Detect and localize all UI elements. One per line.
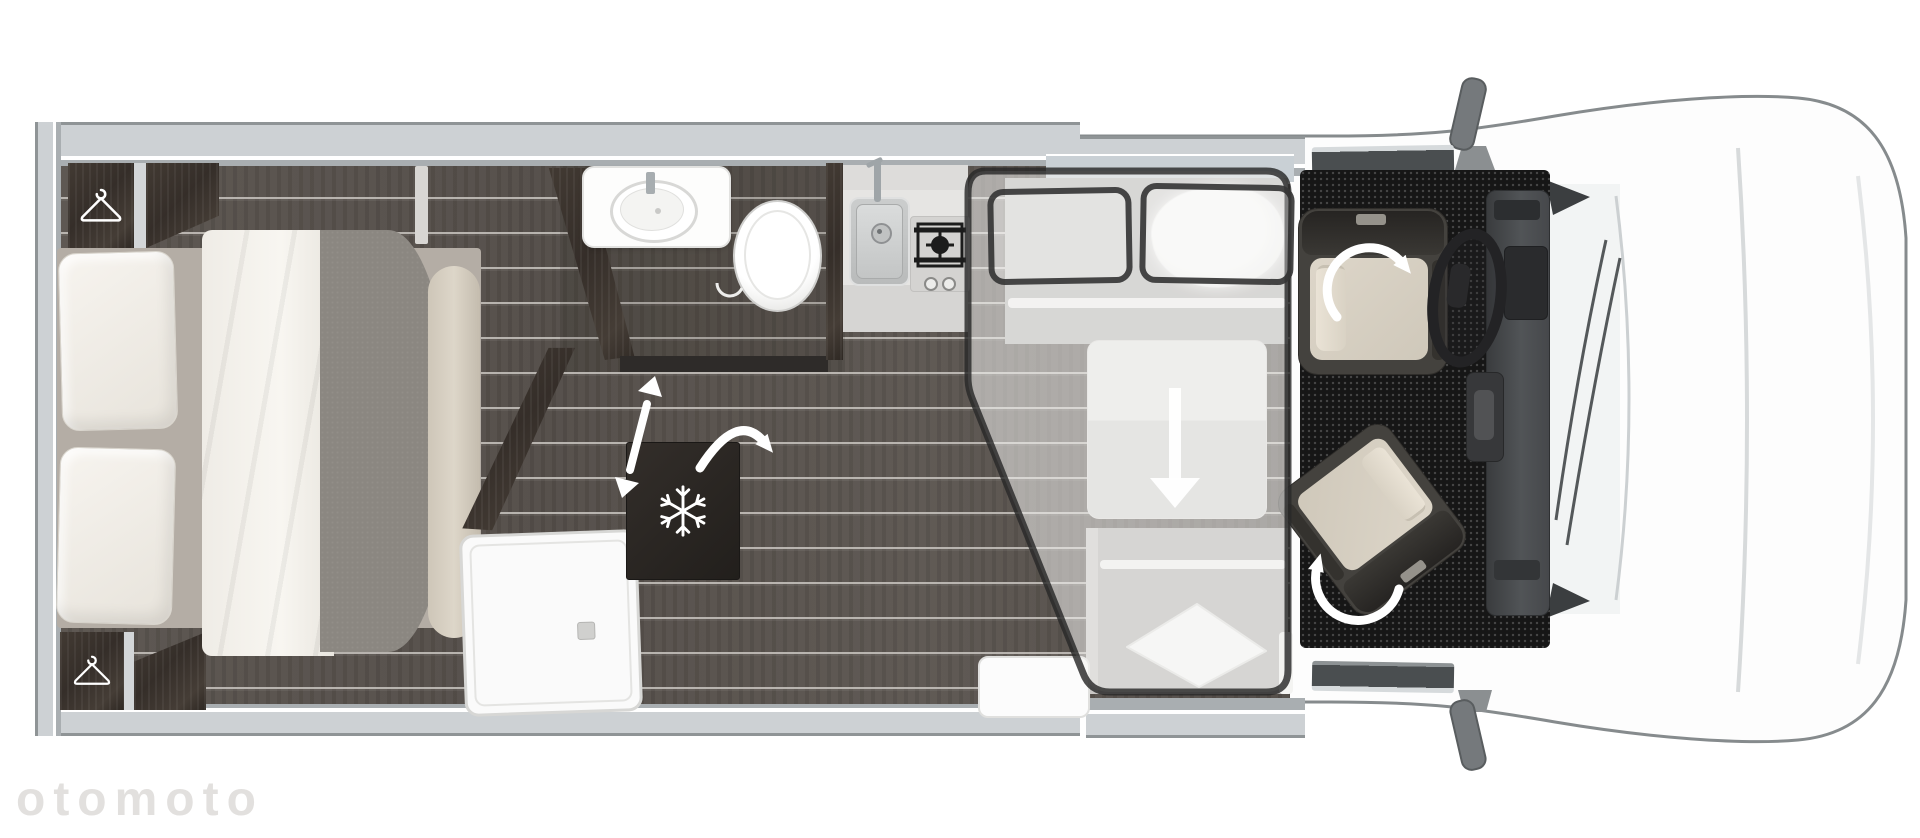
swing-arrow-icon xyxy=(700,431,764,468)
watermark: otomoto xyxy=(16,772,264,827)
drop-bed-pillow-outline xyxy=(1139,183,1295,286)
drop-bed-pillow-outline xyxy=(987,187,1133,285)
swivel-arrow-icon xyxy=(1316,567,1399,620)
annotation-arrows xyxy=(0,0,1920,838)
slide-arrow-icon xyxy=(615,376,662,498)
hinge-arc xyxy=(717,283,742,296)
floorplan-canvas: otomoto xyxy=(0,0,1920,838)
swivel-arrow-icon xyxy=(1327,248,1402,317)
drop-arrow-head xyxy=(1150,478,1200,508)
drop-arrow-icon xyxy=(1169,388,1181,480)
